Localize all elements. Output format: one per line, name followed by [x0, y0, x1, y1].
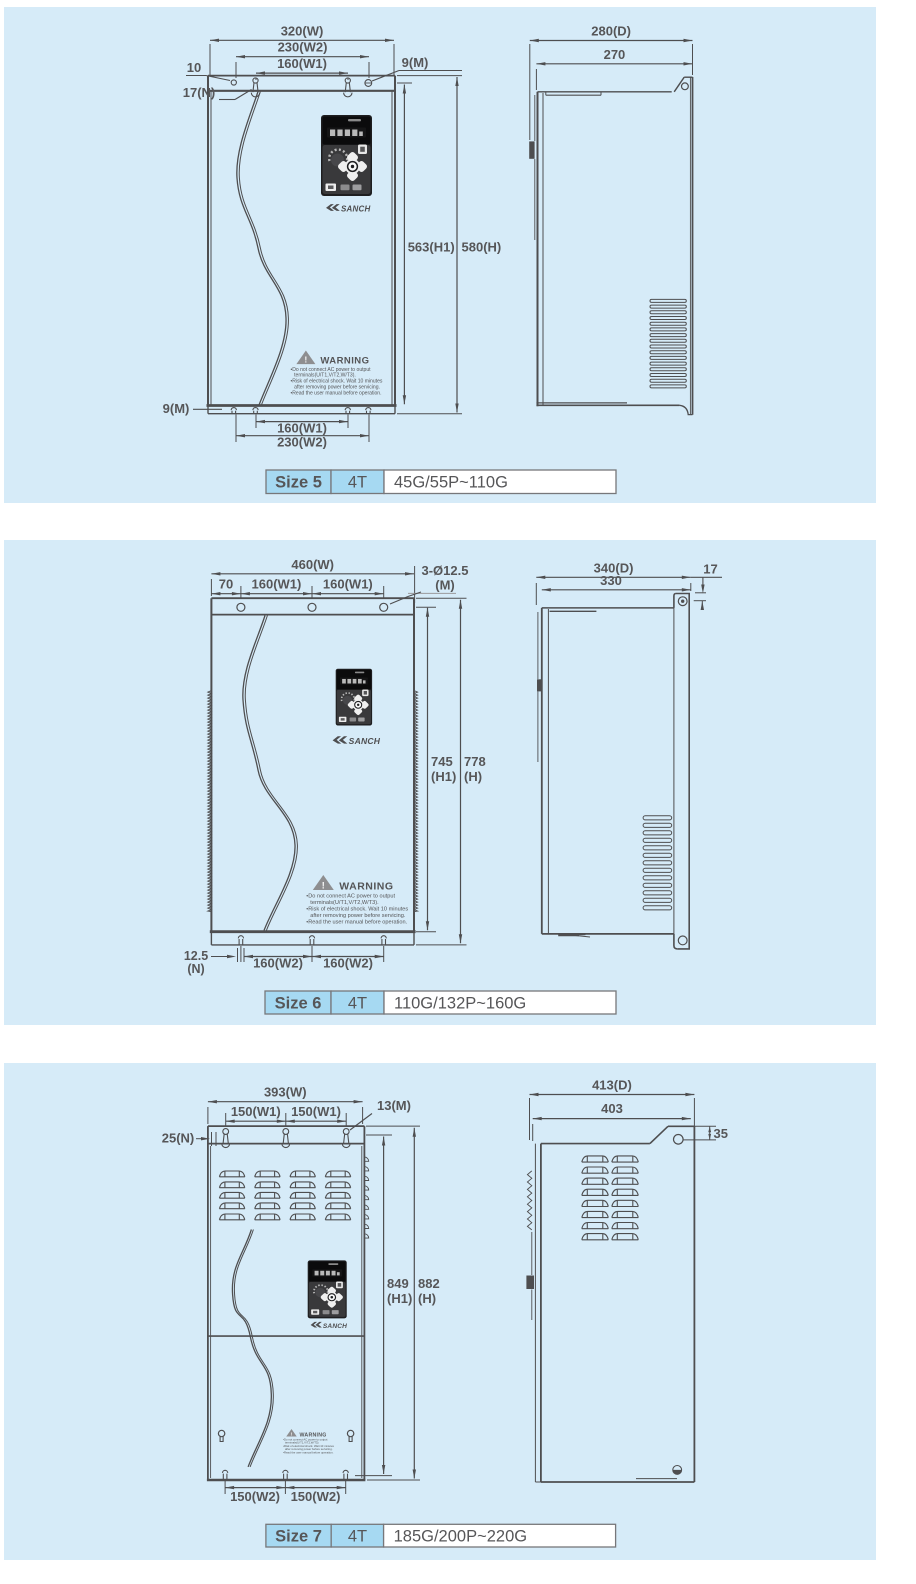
svg-text:882: 882: [418, 1276, 440, 1291]
svg-text:160(W1): 160(W1): [277, 420, 327, 435]
svg-text:580(H): 580(H): [462, 240, 502, 255]
svg-text:(H): (H): [464, 769, 482, 784]
svg-text:280(D): 280(D): [591, 24, 631, 39]
svg-text:(M): (M): [435, 578, 455, 593]
svg-text:70: 70: [219, 576, 233, 591]
svg-text:160(W2): 160(W2): [323, 956, 373, 971]
svg-text:150(W2): 150(W2): [291, 1489, 341, 1504]
svg-text:Size 7: Size 7: [275, 1527, 322, 1545]
svg-text:110G/132P~160G: 110G/132P~160G: [394, 994, 526, 1012]
svg-text:10: 10: [187, 60, 201, 75]
svg-text:393(W): 393(W): [264, 1085, 307, 1100]
svg-text:25(N): 25(N): [162, 1131, 195, 1146]
svg-text:330: 330: [600, 573, 622, 588]
svg-text:403: 403: [601, 1101, 623, 1116]
svg-text:160(W1): 160(W1): [277, 56, 327, 71]
svg-text:460(W): 460(W): [291, 557, 334, 572]
svg-text:150(W1): 150(W1): [231, 1104, 281, 1119]
svg-text:13(M): 13(M): [377, 1098, 411, 1113]
svg-text:230(W2): 230(W2): [278, 40, 328, 55]
svg-text:(H1): (H1): [431, 769, 456, 784]
svg-text:160(W1): 160(W1): [323, 577, 373, 592]
svg-text:778: 778: [464, 754, 486, 769]
svg-text:160(W2): 160(W2): [253, 956, 303, 971]
svg-text:4T: 4T: [348, 1527, 367, 1545]
svg-text:185G/200P~220G: 185G/200P~220G: [394, 1527, 527, 1545]
svg-text:320(W): 320(W): [281, 23, 324, 38]
svg-text:4T: 4T: [348, 994, 367, 1012]
svg-text:(H): (H): [418, 1291, 436, 1306]
svg-text:Size 5: Size 5: [275, 474, 322, 492]
svg-text:160(W1): 160(W1): [252, 577, 302, 592]
svg-text:4T: 4T: [348, 474, 367, 492]
svg-text:17: 17: [703, 562, 717, 577]
svg-text:(H1): (H1): [387, 1291, 412, 1306]
svg-text:12.5: 12.5: [184, 949, 208, 963]
svg-text:35: 35: [714, 1126, 728, 1141]
svg-text:9(M): 9(M): [402, 55, 429, 70]
svg-text:9(M): 9(M): [163, 401, 190, 416]
svg-text:150(W2): 150(W2): [230, 1489, 280, 1504]
svg-text:(N): (N): [187, 962, 204, 976]
svg-text:Size 6: Size 6: [275, 994, 322, 1012]
svg-text:745: 745: [431, 754, 453, 769]
svg-text:150(W1): 150(W1): [291, 1104, 341, 1119]
svg-text:230(W2): 230(W2): [277, 435, 327, 450]
svg-text:45G/55P~110G: 45G/55P~110G: [394, 474, 508, 492]
svg-text:563(H1): 563(H1): [408, 240, 455, 255]
svg-text:270: 270: [604, 47, 626, 62]
svg-text:849: 849: [387, 1276, 409, 1291]
svg-text:3-Ø12.5: 3-Ø12.5: [422, 563, 469, 578]
svg-text:413(D): 413(D): [592, 1078, 632, 1093]
svg-text:17(N): 17(N): [183, 85, 216, 100]
